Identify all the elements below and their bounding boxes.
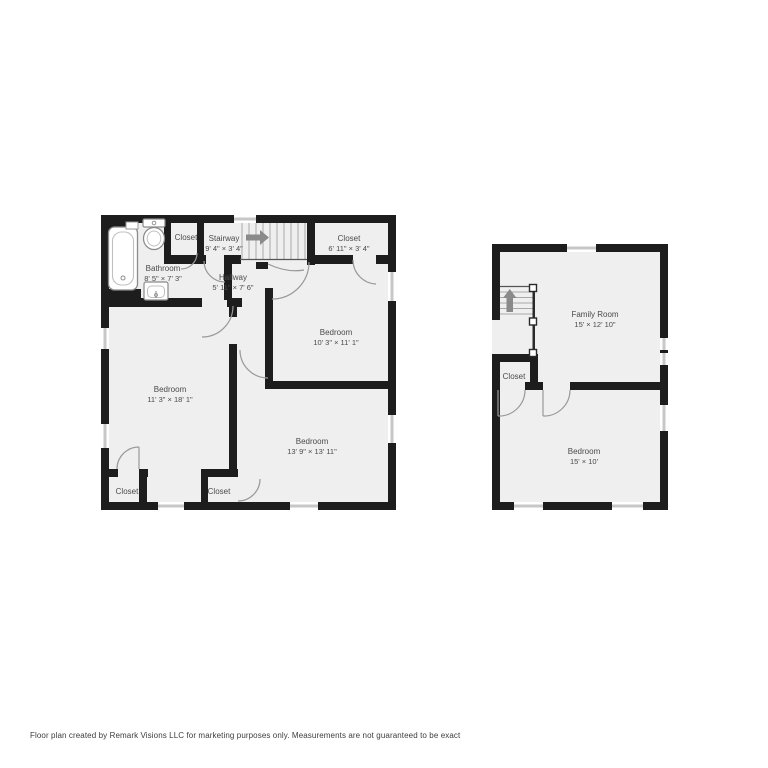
wall <box>164 255 206 264</box>
floor-plan-page: Closet Stairway 9' 4" × 3' 4" Closet 6' … <box>0 0 768 768</box>
wall <box>315 255 353 264</box>
wall <box>265 288 273 384</box>
room-dims-bedroom-2: 11' 3" × 18' 1" <box>147 395 193 404</box>
bathtub-icon <box>109 227 138 290</box>
wall <box>256 262 268 269</box>
room-label-stairway: Stairway <box>209 234 240 243</box>
wall <box>660 244 668 510</box>
room-label-bedroom-3: Bedroom <box>296 437 329 446</box>
wall <box>265 381 396 389</box>
wall <box>388 215 396 510</box>
wall <box>101 469 118 477</box>
window <box>567 244 596 252</box>
floor-plan-right: Family Room 15' × 12' 10" Closet Bedroom… <box>492 244 668 510</box>
window <box>234 215 256 223</box>
window <box>660 353 668 365</box>
room-label-bedroom-4: Bedroom <box>568 447 601 456</box>
wall <box>376 255 388 264</box>
wall <box>492 354 500 510</box>
room-label-bedroom-1: Bedroom <box>320 328 353 337</box>
room-label-bathroom: Bathroom <box>146 264 181 273</box>
sink-icon <box>144 282 168 300</box>
room-label-closet: Closet <box>503 372 526 381</box>
window <box>612 502 643 510</box>
room-label-closet-bm: Closet <box>208 487 231 496</box>
room-label-family-room: Family Room <box>571 310 618 319</box>
window <box>158 502 184 510</box>
room-dims-hallway: 5' 11" × 7' 6" <box>212 283 254 292</box>
wall <box>229 344 237 477</box>
wall <box>492 244 500 320</box>
room-label-closet-bl: Closet <box>116 487 139 496</box>
window <box>388 272 396 301</box>
wall <box>139 469 147 510</box>
wall <box>525 382 543 390</box>
toilet-icon <box>143 219 165 250</box>
room-label-hallway: Hallway <box>219 273 247 282</box>
wall <box>307 215 315 265</box>
room-dims-bedroom-1: 10' 3" × 11' 1" <box>313 338 359 347</box>
window <box>388 415 396 443</box>
room-dims-family-room: 15' × 12' 10" <box>574 320 616 329</box>
room-dims-bedroom-4: 15' × 10' <box>570 457 599 466</box>
room-dims-bathroom: 8' 5" × 7' 3" <box>144 274 182 283</box>
wall <box>570 382 668 390</box>
window <box>101 328 109 349</box>
floor-plan-image: Closet Stairway 9' 4" × 3' 4" Closet 6' … <box>0 0 768 768</box>
room-dims-bedroom-3: 13' 9" × 13' 11" <box>287 447 337 456</box>
room-label-closet-top: Closet <box>175 233 198 242</box>
cabinet-icon <box>126 222 138 229</box>
wall <box>197 222 204 255</box>
floor-plan-left: Closet Stairway 9' 4" × 3' 4" Closet 6' … <box>101 215 396 510</box>
window <box>290 502 318 510</box>
window <box>514 502 543 510</box>
room-dims-stairway: 9' 4" × 3' 4" <box>205 244 243 253</box>
room-dims-closet-topright: 6' 11" × 3' 4" <box>328 244 370 253</box>
room-label-closet-topright: Closet <box>338 234 361 243</box>
disclaimer-text: Floor plan created by Remark Visions LLC… <box>30 731 460 740</box>
room-label-bedroom-2: Bedroom <box>154 385 187 394</box>
wall <box>101 215 109 510</box>
window <box>660 405 668 431</box>
window <box>101 424 109 448</box>
window <box>660 338 668 350</box>
